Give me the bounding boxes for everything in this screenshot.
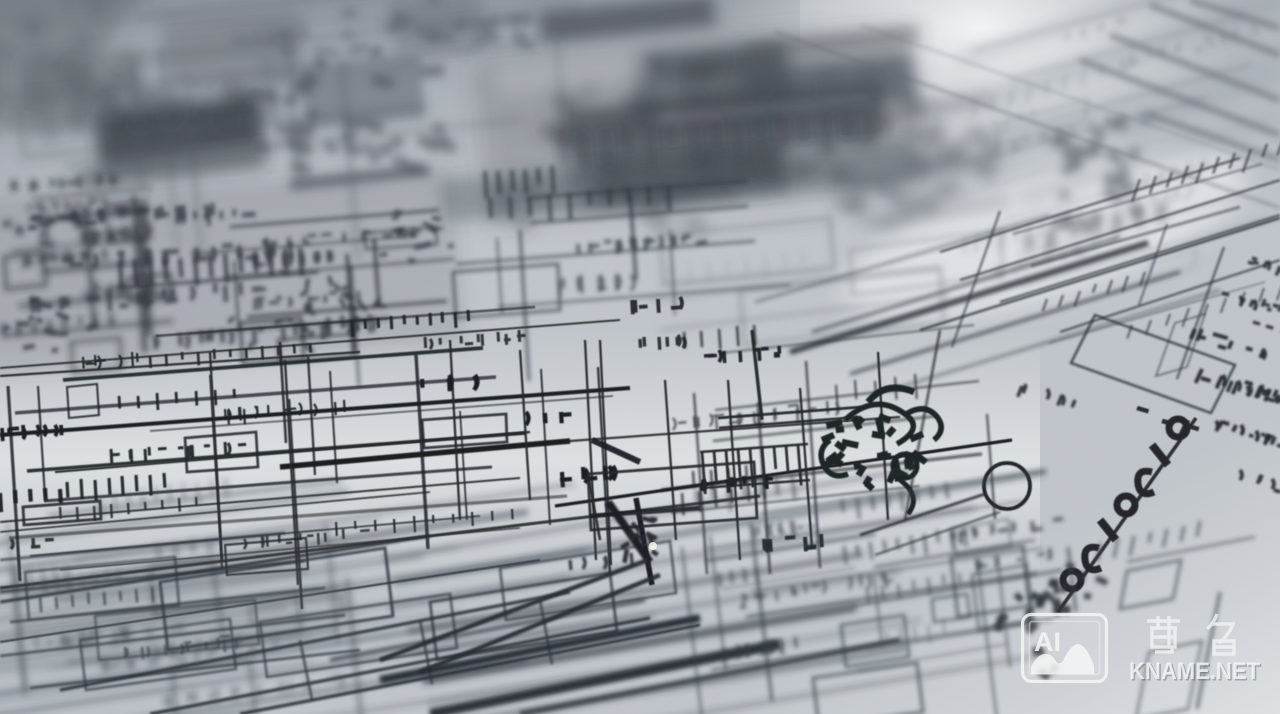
svg-text:AI: AI — [1034, 627, 1061, 657]
svg-text:KNAME.NET: KNAME.NET — [1129, 658, 1260, 685]
